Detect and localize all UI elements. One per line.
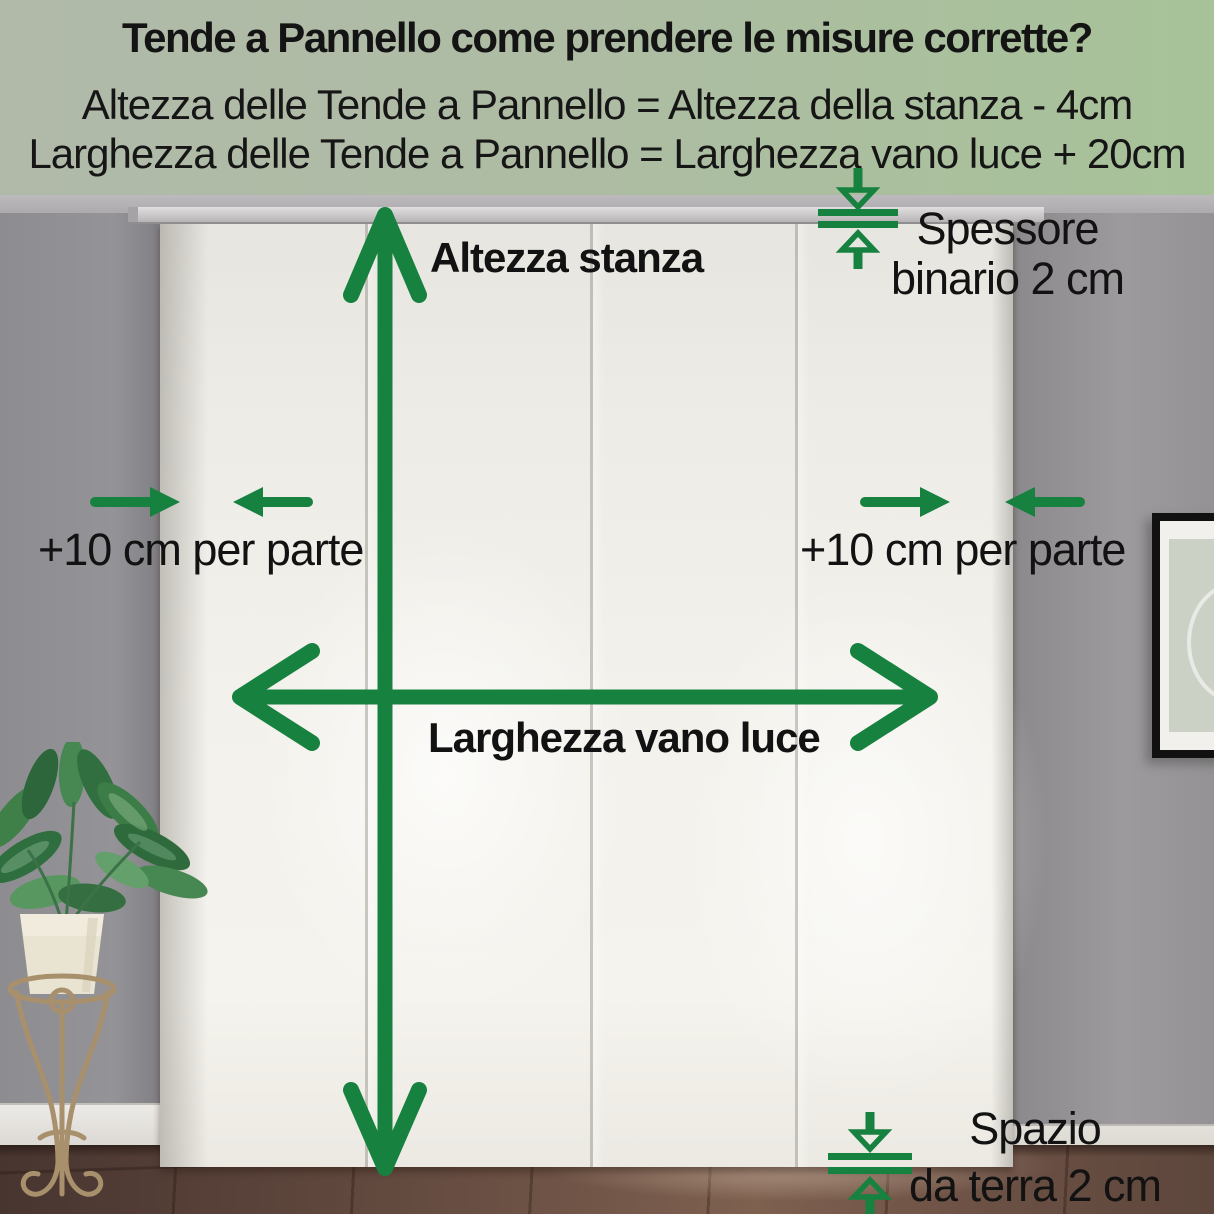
track-thickness-label: Spessore binario 2 cm [860,204,1155,304]
right-allowance-label: +10 cm per parte [800,524,1125,576]
left-allowance-label: +10 cm per parte [38,524,363,576]
track-endcap [128,207,138,222]
panel-seam [365,221,368,1167]
panel-curtains [160,221,1013,1167]
page-title: Tende a Pannello come prendere le misure… [0,12,1214,64]
panel-seam [590,221,593,1167]
track-thickness-line2: binario 2 cm [860,254,1155,304]
height-formula-text: Altezza delle Tende a Pannello = Altezza… [0,82,1214,128]
header: Tende a Pannello come prendere le misure… [0,0,1214,195]
plant-stand [10,976,114,1194]
floor-gap-label: Spazio da terra 2 cm [885,1100,1185,1214]
plant-pot [20,914,104,994]
opening-width-label: Larghezza vano luce [428,714,820,762]
window-light-glow [255,521,635,1021]
track-thickness-line1: Spessore [860,204,1155,254]
panel-seam [795,221,798,1167]
room-height-label: Altezza stanza [430,234,703,282]
floor-gap-line2: da terra 2 cm [885,1157,1185,1214]
picture-art [1169,539,1214,732]
floor-gap-line1: Spazio [885,1100,1185,1157]
wall-picture-frame [1152,513,1214,758]
plant-leaves [0,742,210,924]
curtain-right-shade [991,221,1013,1167]
potted-plant [0,742,210,1214]
width-formula-text: Larghezza delle Tende a Pannello = Largh… [0,131,1214,177]
infographic-page: Tende a Pannello come prendere le misure… [0,0,1214,1214]
picture-art-circle [1187,581,1214,704]
